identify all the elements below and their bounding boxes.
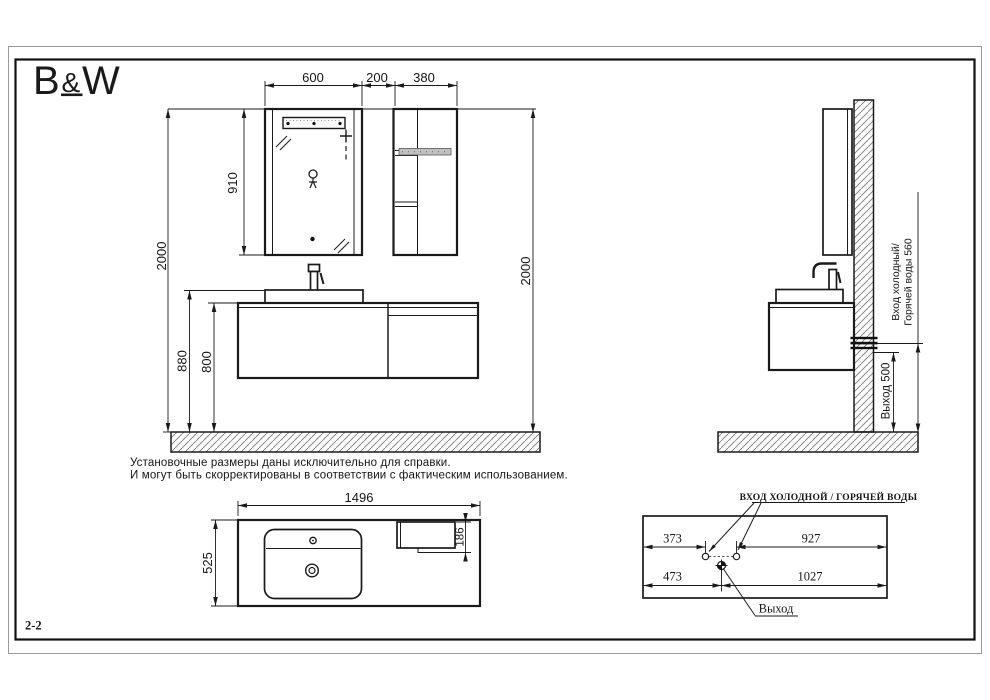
inlets-label: ВХОД ХОЛОДНОЙ / ГОРЯЧЕЙ ВОДЫ: [740, 491, 918, 503]
dim-cabinet-top-height: 800: [199, 351, 214, 373]
floor-side: [718, 432, 918, 452]
outlet-callout-label: Выход: [759, 602, 794, 616]
note-line-2: И могут быть скорректированы в соответст…: [130, 470, 568, 482]
faucet-hole-center: [312, 540, 314, 542]
basin-side: [776, 290, 843, 304]
installation-notes: Установочные размеры даны исключительно …: [130, 457, 568, 482]
note-line-1: Установочные размеры даны исключительно …: [130, 457, 451, 469]
logo-underline: [61, 94, 83, 97]
basin-plan: [265, 530, 362, 599]
floor-front: [171, 432, 540, 452]
dim-mirror-height: 910: [225, 172, 240, 194]
vanity-cabinet-front: [238, 303, 478, 378]
drawing-canvas: B & W: [0, 0, 990, 700]
dim-outlet-right: 1027: [798, 570, 823, 584]
front-elevation: 600 200 380 910 2000 880 800: [154, 70, 540, 452]
dim-gap: 200: [366, 70, 388, 85]
logo-letter-w: W: [82, 59, 120, 103]
dim-countertop-height: 880: [175, 350, 190, 372]
logo-letter-b: B: [33, 59, 60, 103]
faucet-side-icon: [814, 264, 841, 291]
mirror-cabinet-side: [823, 109, 852, 255]
side-elevation: Вход холодный/ Горячей воды 560 Выход 50…: [718, 100, 923, 452]
logo-ampersand: &: [62, 67, 81, 98]
drain-icon: [306, 564, 319, 577]
dim-inlet-left: 373: [663, 532, 682, 546]
dim-counter-depth: 525: [200, 552, 215, 574]
faucet-front-icon: [309, 265, 324, 292]
wall-side: [854, 100, 874, 432]
dim-counter-width: 1496: [345, 490, 374, 505]
inlet-label-line2: Горячей воды 560: [903, 238, 915, 326]
dim-total-height-right: 2000: [518, 257, 533, 286]
basin-front: [265, 290, 363, 303]
dim-inlet-right: 927: [802, 532, 821, 546]
vanity-cabinet-side: [769, 303, 854, 370]
drawing-sheet: B & W: [0, 0, 990, 700]
brand-logo: B & W: [33, 59, 120, 103]
towel-bar-icon: [399, 149, 451, 156]
dim-shelf-depth: 186: [455, 527, 467, 546]
dim-mirror-width: 600: [302, 70, 324, 85]
inlet-label-line1: Вход холодный/: [890, 243, 902, 321]
shelf-plan: [397, 522, 456, 553]
dim-shelf-width: 380: [413, 70, 435, 85]
dim-total-height-left: 2000: [154, 242, 169, 271]
knob-dot-icon: [310, 237, 314, 241]
section-label: 2-2: [25, 619, 42, 633]
light-bar-icon: [283, 118, 345, 129]
outlet-label: Выход 500: [881, 363, 893, 420]
countertop-plan: 1496 525 186: [200, 490, 480, 606]
side-dimensions: Вход холодный/ Горячей воды 560 Выход 50…: [874, 192, 924, 433]
shelf-unit-front: [394, 109, 458, 255]
wall-connection-plan: ВХОД ХОЛОДНОЙ / ГОРЯЧЕЙ ВОДЫ 373: [643, 491, 918, 616]
pipe-connection-icon: [851, 337, 878, 349]
dim-outlet-left: 473: [663, 570, 682, 584]
mirror-cabinet-front: [265, 109, 362, 255]
